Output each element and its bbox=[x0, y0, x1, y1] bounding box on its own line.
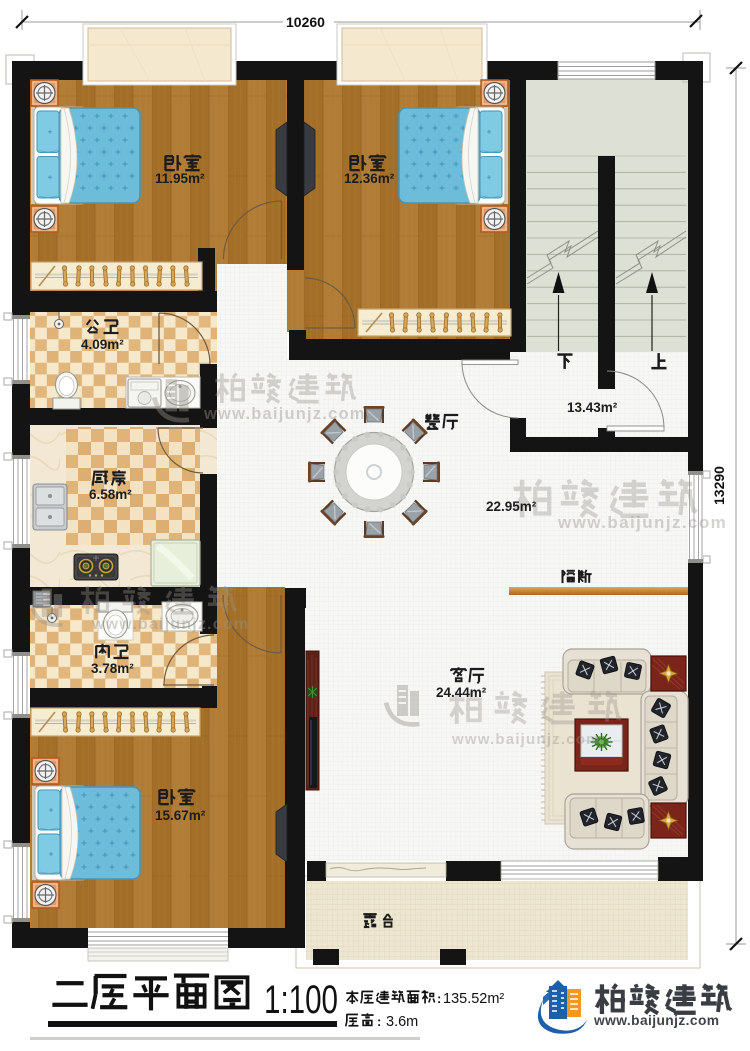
svg-text:www.baijunjz.com: www.baijunjz.com bbox=[451, 731, 601, 748]
svg-text:www.baijunjz.com: www.baijunjz.com bbox=[203, 405, 366, 423]
svg-text:13.43m²: 13.43m² bbox=[567, 400, 618, 415]
svg-text:www.baijunjz.com: www.baijunjz.com bbox=[91, 616, 249, 633]
svg-text:11.95m²: 11.95m² bbox=[155, 171, 205, 186]
svg-text:1:100: 1:100 bbox=[264, 978, 338, 1022]
svg-text:3.6m: 3.6m bbox=[386, 1014, 418, 1030]
svg-text:10260: 10260 bbox=[286, 14, 325, 30]
svg-text:6.58m²: 6.58m² bbox=[89, 487, 132, 502]
svg-text:www.baijunjz.com: www.baijunjz.com bbox=[557, 513, 727, 532]
svg-text::: : bbox=[437, 991, 441, 1006]
svg-text:12.36m²: 12.36m² bbox=[344, 171, 395, 186]
svg-text:3.78m²: 3.78m² bbox=[91, 661, 134, 676]
svg-text::: : bbox=[377, 1014, 381, 1029]
svg-text:www.baijunjz.com: www.baijunjz.com bbox=[593, 1013, 719, 1028]
svg-text:13290: 13290 bbox=[711, 466, 727, 505]
svg-text:24.44m²: 24.44m² bbox=[436, 685, 487, 700]
svg-text:135.52m²: 135.52m² bbox=[443, 991, 504, 1007]
svg-text:22.95m²: 22.95m² bbox=[486, 499, 537, 514]
svg-text:15.67m²: 15.67m² bbox=[155, 808, 206, 823]
svg-text:4.09m²: 4.09m² bbox=[81, 337, 124, 352]
